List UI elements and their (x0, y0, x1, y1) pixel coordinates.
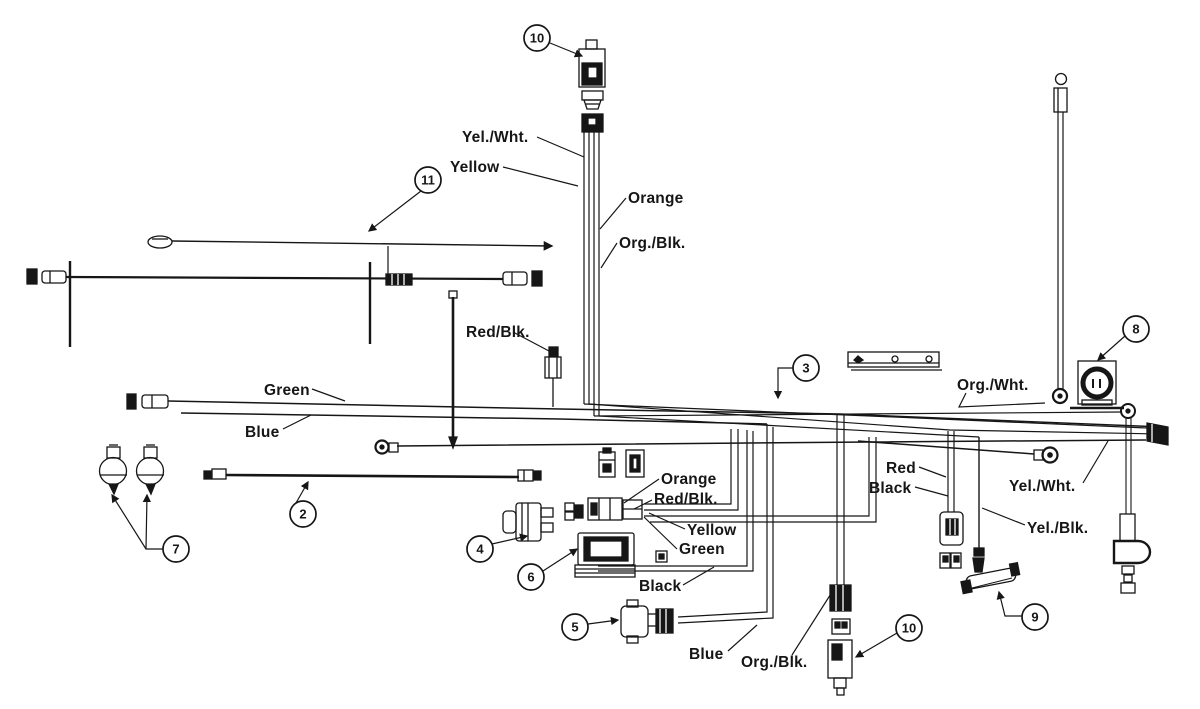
label-green-left-text: Green (264, 382, 310, 399)
part-yelblk-plug (973, 548, 984, 572)
wiring-diagram: Yel./Wht.YellowOrangeOrg./Blk.Red/Blk.Gr… (0, 0, 1200, 709)
label-black-mid-leader (683, 567, 714, 585)
label-red-blk-mid-text: Red/Blk. (654, 491, 718, 508)
callout-8-leader-0 (1098, 336, 1125, 360)
callout-10-bottom: 10 (856, 615, 922, 657)
label-green-left-leader (312, 389, 345, 401)
callout-7: 7 (112, 495, 189, 562)
callout-7-leader-1 (146, 495, 147, 549)
label-black-right-text: Black (869, 480, 912, 497)
part-two-square-connector (940, 553, 961, 568)
wire-bundle-4 (599, 416, 979, 437)
callout-3-number: 3 (802, 361, 809, 376)
label-org-blk-top-leader (601, 243, 617, 268)
callout-2: 2 (290, 482, 316, 527)
part-ring-terminal-right (1034, 448, 1058, 463)
callout-6-number: 6 (527, 570, 534, 585)
label-orange-top: Orange (600, 190, 684, 229)
part-ignition-switch (503, 503, 553, 541)
callout-5: 5 (562, 614, 618, 640)
callout-10-bottom-number: 10 (902, 621, 916, 636)
label-yel-wht-right-text: Yel./Wht. (1009, 478, 1075, 495)
wire-blue-drop-a (678, 424, 767, 617)
part-bulb-1 (100, 445, 128, 494)
part-spark-plug-cap-bottom (828, 585, 852, 695)
callout-9-number: 9 (1031, 610, 1038, 625)
callout-9: 9 (999, 592, 1048, 630)
label-yel-wht-top: Yel./Wht. (462, 129, 584, 157)
callout-5-leader-0 (588, 620, 618, 624)
part-cable-lower-left-end (27, 269, 66, 284)
label-yellow-top-leader (503, 167, 578, 186)
wire-cable-lower (66, 277, 503, 279)
wiring-diagram-page: Yel./Wht.YellowOrangeOrg./Blk.Red/Blk.Gr… (0, 0, 1200, 709)
label-blue-left: Blue (245, 415, 311, 441)
wire-blue-long (181, 413, 767, 424)
label-green-mid-text: Green (679, 541, 725, 558)
callout-6: 6 (518, 549, 577, 590)
part-spark-plug-cap-top (579, 40, 605, 132)
callout-3: 3 (778, 355, 819, 398)
label-org-wht-right-text: Org./Wht. (957, 377, 1029, 394)
part-cable-lower-right-end (503, 271, 542, 286)
callout-11-leader-0 (369, 191, 421, 231)
label-yellow-top: Yellow (450, 159, 578, 186)
callout-8: 8 (1098, 316, 1149, 360)
label-blue-left-leader (283, 415, 311, 429)
label-black-right: Black (869, 480, 948, 497)
label-black-right-leader (915, 487, 948, 496)
label-org-blk-top-text: Org./Blk. (619, 235, 685, 252)
callout-7-leader-0 (112, 495, 163, 549)
part-bulb-2 (137, 445, 165, 494)
label-red-right-leader (919, 467, 946, 477)
label-black-mid-text: Black (639, 578, 682, 595)
part-plug-connector-a (599, 448, 615, 477)
part-redblk-connector-upper (545, 347, 561, 378)
label-org-blk-bottom: Org./Blk. (741, 589, 834, 671)
label-yel-wht-right: Yel./Wht. (1009, 441, 1108, 495)
callout-5-number: 5 (571, 620, 578, 635)
part-redblack-connector (940, 512, 963, 545)
part-cable-11-end (148, 236, 172, 248)
part-cable-threads (386, 274, 412, 285)
part-green-wire-connector (127, 394, 168, 409)
part-choke-knob (1114, 404, 1150, 593)
label-yel-wht-right-leader (1083, 441, 1108, 483)
part-square-on-black-wire (656, 551, 667, 562)
part-4pin-connector (588, 498, 642, 520)
parts-layer (27, 40, 1168, 695)
label-orange-top-text: Orange (628, 190, 684, 207)
callout-6-leader-0 (543, 549, 577, 571)
wire-item2 (226, 475, 519, 477)
part-wire2-left-connector (204, 469, 226, 479)
callout-10-top: 10 (524, 25, 582, 56)
part-wire2-right-connector (518, 470, 541, 481)
callout-4: 4 (467, 536, 527, 562)
label-yellow-mid-text: Yellow (687, 522, 737, 539)
callout-11-number: 11 (421, 173, 435, 188)
part-mounting-bracket (848, 352, 942, 370)
label-red-blk-mid: Red/Blk. (634, 491, 718, 509)
label-yellow-top-text: Yellow (450, 159, 500, 176)
label-orange-mid-text: Orange (661, 471, 717, 488)
callout-4-number: 4 (476, 542, 484, 557)
part-switch-5 (621, 600, 673, 643)
label-yel-blk-right-leader (982, 508, 1025, 525)
wire-cable-11 (172, 241, 552, 246)
part-plug-connector-b (626, 450, 644, 477)
part-ring-terminal-left (376, 441, 399, 454)
callout-11: 11 (369, 167, 441, 231)
label-blue-left-text: Blue (245, 424, 280, 441)
wire-ring-left-run (397, 440, 1146, 446)
label-org-blk-bottom-text: Org./Blk. (741, 654, 807, 671)
callout-2-number: 2 (299, 507, 306, 522)
part-connector-near-switch (565, 503, 583, 520)
part-hour-meter (1070, 361, 1124, 408)
wire-yelwht-ring-right (858, 441, 1034, 454)
callout-7-number: 7 (172, 542, 179, 557)
annotations-layer: Yel./Wht.YellowOrangeOrg./Blk.Red/Blk.Gr… (112, 25, 1149, 671)
label-red-right-text: Red (886, 460, 916, 477)
callout-10-bottom-leader-0 (856, 633, 897, 657)
part-fuse-9 (961, 563, 1020, 594)
label-red-blk-upper: Red/Blk. (466, 324, 549, 351)
label-orange-top-leader (600, 198, 626, 229)
callout-2-leader-0 (296, 482, 308, 503)
label-blue-bottom-leader (728, 625, 757, 651)
callout-8-number: 8 (1132, 322, 1139, 337)
callout-9-leader-0 (999, 592, 1022, 616)
label-red-blk-upper-text: Red/Blk. (466, 324, 530, 341)
label-yel-wht-top-leader (537, 137, 584, 157)
part-black-terminal-right (1147, 423, 1168, 445)
callout-3-leader-0 (778, 368, 793, 398)
label-yel-blk-right: Yel./Blk. (982, 508, 1088, 537)
label-yel-wht-top-text: Yel./Wht. (462, 129, 528, 146)
label-org-wht-right: Org./Wht. (957, 377, 1045, 407)
callout-10-top-number: 10 (530, 31, 544, 46)
callout-10-top-leader-0 (550, 43, 582, 56)
label-blue-bottom-text: Blue (689, 646, 724, 663)
label-org-blk-top: Org./Blk. (601, 235, 685, 268)
label-org-wht-right-leader (959, 393, 1045, 407)
part-pointer-needle (449, 291, 457, 448)
label-yel-blk-right-text: Yel./Blk. (1027, 520, 1088, 537)
part-rod-right (1053, 74, 1067, 404)
label-red-right: Red (886, 460, 946, 477)
label-green-left: Green (264, 382, 345, 401)
